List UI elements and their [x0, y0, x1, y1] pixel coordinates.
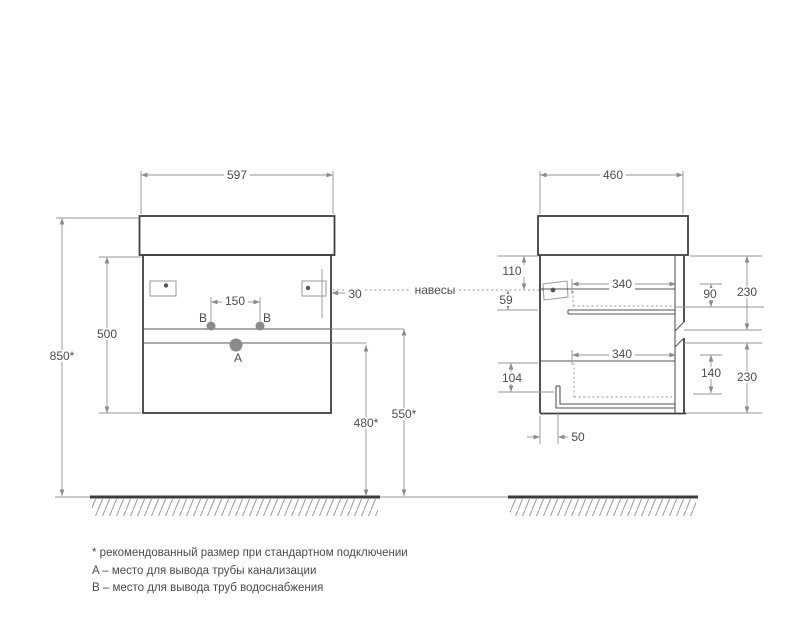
- dim-bottom-drawer-inner-height: 140: [698, 367, 724, 379]
- technical-drawing-canvas: 597 460 850* 500 150 30 480* 550* навесы…: [0, 0, 800, 640]
- dim-bottom-drawer-depth: 340: [609, 348, 635, 360]
- dim-top-drawer-depth: 340: [609, 278, 635, 290]
- hangers-callout: навесы: [412, 284, 459, 296]
- dim-outlet-b-height: 550*: [389, 408, 420, 420]
- dim-drain-offset: 50: [568, 431, 587, 443]
- front-hanger-left: [150, 281, 176, 296]
- dim-install-height: 850*: [47, 350, 78, 362]
- note-point-a: A – место для вывода трубы канализации: [92, 565, 316, 578]
- front-hanger-right: [302, 269, 326, 318]
- point-label-b-right: B: [263, 312, 271, 324]
- dim-bottom-inset: 104: [499, 372, 525, 384]
- front-view: [140, 216, 335, 413]
- note-recommended-size: * рекомендованный размер при стандартном…: [92, 547, 408, 560]
- dim-front-body-height: 500: [94, 328, 120, 340]
- point-a: [230, 339, 243, 352]
- side-hanger: [543, 281, 568, 300]
- side-bottom-drawer: [540, 361, 675, 408]
- dim-hanger-from-top: 110: [499, 265, 524, 277]
- vanity-dimension-drawing: [0, 0, 800, 640]
- dim-top-drawer-inner-height: 90: [700, 288, 719, 300]
- floor: [55, 497, 698, 516]
- point-label-b-left: B: [199, 312, 207, 324]
- point-b-left: [207, 322, 216, 331]
- dim-top-front-height: 230: [734, 286, 760, 298]
- side-view: [538, 216, 688, 414]
- dim-outlet-a-height: 480*: [351, 417, 382, 429]
- dim-hanger-drop: 59: [496, 294, 515, 306]
- side-view-dimensions: [497, 171, 764, 444]
- dim-outlet-spacing: 150: [222, 295, 248, 307]
- dim-bottom-front-height: 230: [734, 371, 760, 383]
- dim-front-width: 597: [224, 169, 250, 181]
- note-point-b: B – место для вывода труб водоснабжения: [92, 582, 323, 595]
- dim-side-depth: 460: [600, 169, 626, 181]
- dim-hanger-inset: 30: [345, 288, 364, 300]
- point-label-a: A: [234, 352, 242, 364]
- front-view-dimensions: [56, 171, 546, 496]
